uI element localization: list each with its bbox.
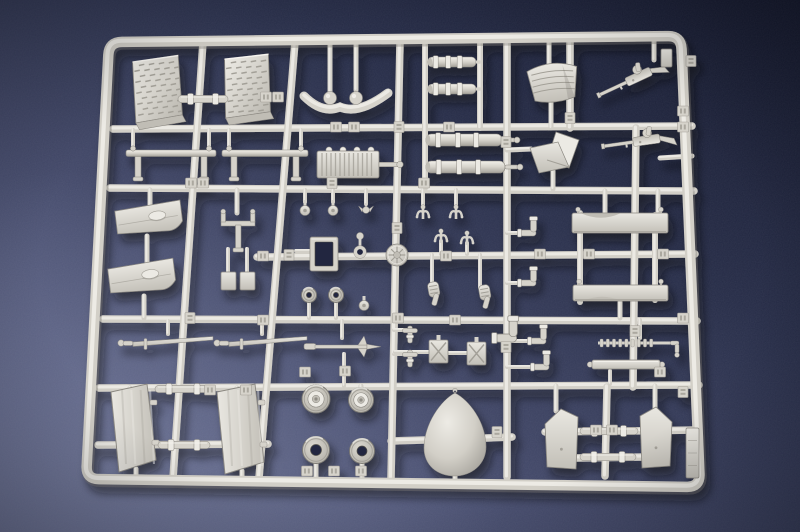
vignette [0,0,800,532]
sprue-photo [0,0,800,532]
photo-viewport [0,0,800,532]
